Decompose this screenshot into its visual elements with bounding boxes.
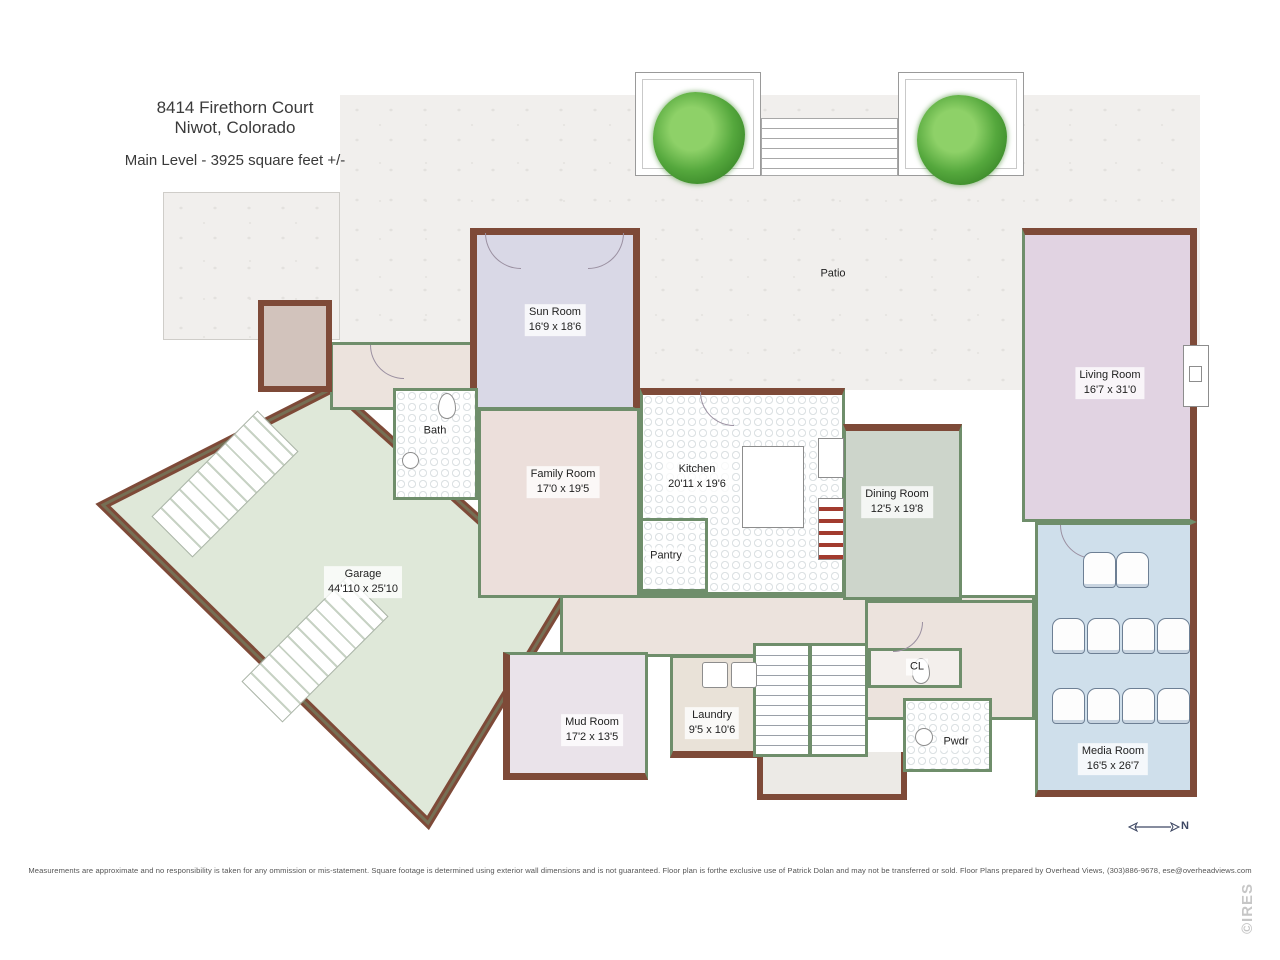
stair-divider [808,646,812,754]
kitchen-island [742,446,804,528]
dryer-icon [731,662,757,688]
theater-seat [1052,688,1085,724]
disclaimer-text: Measurements are approximate and no resp… [0,866,1280,875]
range-appliance [818,498,844,560]
plan-title-block: 8414 Firethorn Court Niwot, Colorado Mai… [95,98,375,169]
refrigerator [818,438,844,478]
kitchen-name: Kitchen [679,463,716,475]
room-family-room [478,408,640,598]
laundry-name: Laundry [692,709,732,721]
closet-name: CL [910,661,924,673]
label-powder: Pwdr [939,734,972,751]
label-dining-room: Dining Room 12'5 x 19'8 [861,486,933,518]
back-porch [757,752,907,800]
toilet-icon [438,393,456,419]
pantry-name: Pantry [650,550,682,562]
floor-plan: Patio Sun Room 16'9 x 18'6 Living Room 1… [0,0,1280,960]
address-line-1: 8414 Firethorn Court [95,98,375,118]
label-closet: CL [906,659,928,676]
label-family-room: Family Room 17'0 x 19'5 [527,466,600,498]
powder-sink-icon [915,728,933,746]
media-room-name: Media Room [1082,745,1144,757]
label-sun-room: Sun Room 16'9 x 18'6 [525,304,586,336]
theater-seat [1083,552,1116,588]
family-room-name: Family Room [531,468,596,480]
label-patio: Patio [816,266,849,283]
label-laundry: Laundry 9'5 x 10'6 [685,707,739,739]
fireplace [1183,345,1209,407]
theater-seat [1087,618,1120,654]
ires-watermark: ©IRES [1239,883,1256,934]
dining-room-name: Dining Room [865,488,929,500]
theater-seat [1052,618,1085,654]
label-mud-room: Mud Room 17'2 x 13'5 [561,714,623,746]
sun-room-name: Sun Room [529,306,581,318]
level-info: Main Level - 3925 square feet +/- [95,152,375,169]
label-bath: Bath [420,423,451,440]
bath-name: Bath [424,425,447,437]
north-arrow-icon [1125,818,1183,836]
dining-room-dims: 12'5 x 19'8 [871,503,924,515]
staircase [753,643,868,757]
living-room-name: Living Room [1079,369,1140,381]
bath-sink-icon [402,452,419,469]
room-bath [393,388,478,500]
laundry-dims: 9'5 x 10'6 [689,724,735,736]
sun-room-dims: 16'9 x 18'6 [529,321,582,333]
fireplace-inner [1189,366,1202,382]
address-line-2: Niwot, Colorado [95,118,375,138]
kitchen-dims: 20'11 x 19'6 [668,478,726,490]
theater-seat [1157,618,1190,654]
theater-seat [1122,618,1155,654]
living-room-dims: 16'7 x 31'0 [1084,384,1137,396]
theater-seat [1122,688,1155,724]
label-pantry: Pantry [646,548,686,565]
garage-name: Garage [345,568,382,580]
north-label: N [1181,820,1189,832]
label-living-room: Living Room 16'7 x 31'0 [1075,367,1144,399]
theater-seat [1087,688,1120,724]
family-room-dims: 17'0 x 19'5 [537,483,590,495]
media-room-dims: 16'5 x 26'7 [1087,760,1140,772]
patio-name: Patio [820,268,845,280]
mud-room-dims: 17'2 x 13'5 [566,731,619,743]
label-garage: Garage 44'110 x 25'10 [324,566,402,598]
mud-room-name: Mud Room [565,716,619,728]
theater-seat [1116,552,1149,588]
garage-dims: 44'110 x 25'10 [328,583,398,595]
entry-closet-room [258,300,332,392]
washer-icon [702,662,728,688]
label-media-room: Media Room 16'5 x 26'7 [1078,743,1148,775]
label-kitchen: Kitchen 20'11 x 19'6 [664,461,730,493]
patio-steps [761,118,898,176]
theater-seat [1157,688,1190,724]
powder-name: Pwdr [943,736,968,748]
